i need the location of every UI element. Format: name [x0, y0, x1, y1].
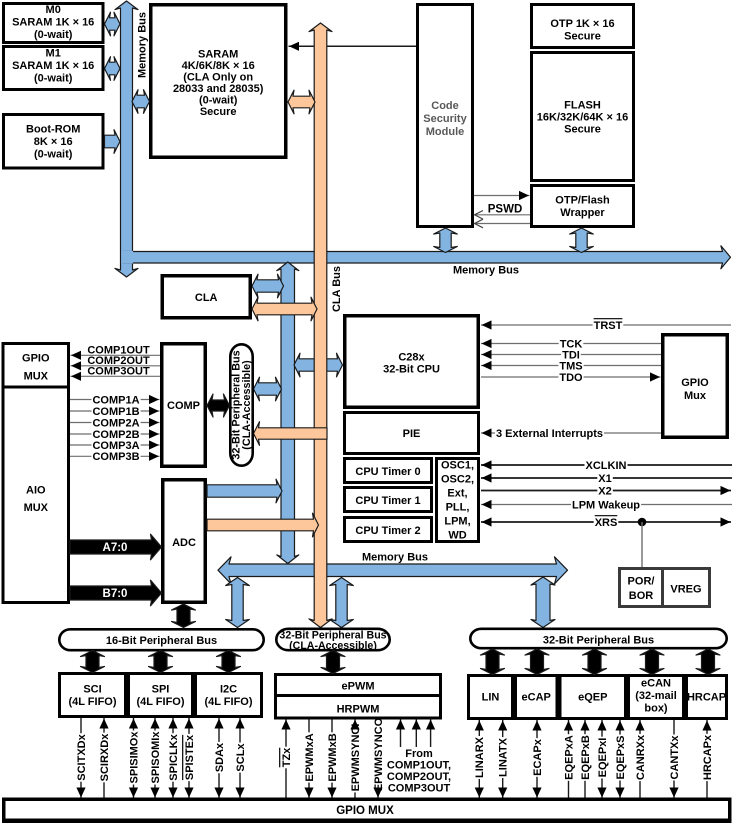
svg-text:SCI: SCI: [83, 684, 101, 696]
svg-text:TDO: TDO: [559, 372, 583, 384]
svg-text:32-Bit Peripheral Bus: 32-Bit Peripheral Bus: [543, 635, 654, 647]
svg-text:AIO: AIO: [26, 485, 46, 497]
svg-text:ECAPx: ECAPx: [532, 738, 544, 776]
svg-text:(4L FIFO): (4L FIFO): [204, 696, 252, 708]
svg-text:SDAx: SDAx: [214, 742, 226, 772]
svg-text:SCIRXDx: SCIRXDx: [99, 733, 111, 782]
svg-text:WD: WD: [448, 530, 466, 542]
svg-text:ePWM: ePWM: [342, 681, 375, 693]
svg-text:XCLKIN: XCLKIN: [586, 460, 627, 472]
svg-text:X2: X2: [598, 485, 611, 497]
svg-text:COMP3B: COMP3B: [92, 451, 139, 463]
svg-text:GPIO MUX: GPIO MUX: [336, 805, 394, 817]
svg-text:Boot-ROM: Boot-ROM: [26, 124, 80, 136]
svg-text:EQEPxB: EQEPxB: [580, 735, 592, 780]
svg-text:COMP: COMP: [167, 400, 200, 412]
svg-text:PIE: PIE: [403, 428, 421, 440]
svg-text:28033 and 28035): 28033 and 28035): [173, 83, 264, 95]
svg-text:SARAM: SARAM: [198, 49, 238, 61]
svg-text:Code: Code: [431, 100, 459, 112]
svg-text:FLASH: FLASH: [564, 100, 601, 112]
svg-text:32-Bit CPU: 32-Bit CPU: [383, 364, 440, 376]
svg-text:EQEPxA: EQEPxA: [563, 735, 575, 780]
svg-text:SPICLKx: SPICLKx: [168, 733, 180, 780]
svg-text:Wrapper: Wrapper: [560, 207, 605, 219]
svg-text:Memory Bus: Memory Bus: [136, 12, 148, 78]
svg-text:SPISIMOx: SPISIMOx: [128, 731, 140, 784]
svg-text:SARAM 1K × 16: SARAM 1K × 16: [12, 17, 94, 29]
svg-text:EPWMxB: EPWMxB: [327, 733, 339, 781]
svg-text:VREG: VREG: [670, 584, 701, 596]
svg-text:LPM Wakeup: LPM Wakeup: [572, 499, 640, 511]
svg-text:CPU Timer 0: CPU Timer 0: [355, 466, 420, 478]
svg-text:Secure: Secure: [564, 124, 601, 136]
svg-text:EQEPxI: EQEPxI: [597, 738, 609, 778]
svg-text:PSWD: PSWD: [488, 204, 523, 216]
svg-text:16-Bit Peripheral Bus: 16-Bit Peripheral Bus: [106, 635, 217, 647]
svg-text:M0: M0: [46, 4, 61, 16]
svg-text:LINATX: LINATX: [498, 737, 510, 777]
svg-text:OTP 1K × 16: OTP 1K × 16: [550, 18, 614, 30]
svg-text:8K × 16: 8K × 16: [34, 136, 73, 148]
svg-text:PLL,: PLL,: [446, 502, 470, 514]
svg-text:SPISOMIx: SPISOMIx: [150, 731, 162, 784]
svg-text:eQEP: eQEP: [578, 692, 607, 704]
svg-text:(0-wait): (0-wait): [199, 95, 238, 107]
svg-text:CLA: CLA: [195, 292, 218, 304]
svg-text:box): box): [644, 703, 668, 715]
svg-text:TMS: TMS: [559, 360, 582, 372]
svg-text:CPU Timer 2: CPU Timer 2: [355, 525, 420, 537]
svg-text:16K/32K/64K × 16: 16K/32K/64K × 16: [537, 112, 628, 124]
svg-text:OSC1,: OSC1,: [441, 460, 474, 472]
svg-text:BOR: BOR: [629, 590, 654, 602]
svg-text:XRS: XRS: [595, 517, 618, 529]
svg-text:A7:0: A7:0: [103, 542, 128, 554]
svg-text:Security: Security: [423, 113, 467, 125]
svg-text:(CLA Only on: (CLA Only on: [183, 72, 253, 84]
svg-text:HRCAPx: HRCAPx: [702, 734, 714, 780]
svg-text:From: From: [405, 748, 433, 760]
svg-text:POR/: POR/: [628, 576, 655, 588]
svg-text:LPM,: LPM,: [444, 516, 470, 528]
svg-text:COMP1OUT,: COMP1OUT,: [387, 760, 451, 772]
svg-text:CANTXx: CANTXx: [669, 735, 681, 780]
svg-text:EQEPxS: EQEPxS: [615, 735, 627, 779]
svg-text:3 External Interrupts: 3 External Interrupts: [496, 428, 603, 440]
svg-text:SCITXDx: SCITXDx: [76, 733, 88, 780]
svg-text:TRST: TRST: [594, 320, 623, 332]
svg-text:COMP3A: COMP3A: [92, 440, 139, 452]
svg-text:(0-wait): (0-wait): [34, 73, 73, 85]
svg-text:C28x: C28x: [398, 352, 425, 364]
svg-text:TZx: TZx: [281, 747, 293, 767]
svg-text:HRCAP: HRCAP: [687, 692, 726, 704]
svg-text:(0-wait): (0-wait): [34, 29, 73, 41]
svg-text:COMP3OUT: COMP3OUT: [87, 365, 150, 377]
svg-text:SPI: SPI: [152, 684, 170, 696]
svg-text:I2C: I2C: [220, 684, 237, 696]
svg-text:Secure: Secure: [200, 106, 237, 118]
svg-text:MUX: MUX: [24, 371, 49, 383]
svg-text:MUX: MUX: [24, 502, 49, 514]
svg-text:(32-mail: (32-mail: [635, 690, 677, 702]
svg-text:Module: Module: [426, 126, 465, 138]
svg-text:(4L FIFO): (4L FIFO): [136, 696, 184, 708]
svg-text:EPWMSYNCO: EPWMSYNCO: [373, 717, 385, 791]
svg-text:HRPWM: HRPWM: [337, 704, 380, 716]
svg-text:CANRXx: CANRXx: [635, 734, 647, 780]
svg-text:ADC: ADC: [172, 537, 196, 549]
svg-text:(0-wait): (0-wait): [34, 149, 73, 161]
svg-text:Secure: Secure: [564, 31, 601, 43]
svg-text:GPIO: GPIO: [22, 353, 50, 365]
svg-text:COMP2A: COMP2A: [92, 417, 139, 429]
svg-text:Memory Bus: Memory Bus: [362, 552, 428, 564]
svg-text:CPU Timer 1: CPU Timer 1: [355, 495, 420, 507]
svg-text:COMP2OUT,: COMP2OUT,: [387, 771, 451, 783]
svg-text:LINARX: LINARX: [474, 736, 486, 778]
svg-text:SARAM 1K × 16: SARAM 1K × 16: [12, 60, 94, 72]
svg-text:EPWMxA: EPWMxA: [304, 733, 316, 781]
svg-text:4K/6K/8K × 16: 4K/6K/8K × 16: [182, 60, 255, 72]
svg-text:LIN: LIN: [482, 692, 500, 704]
svg-text:COMP3OUT: COMP3OUT: [388, 783, 451, 795]
svg-text:COMP1A: COMP1A: [92, 394, 139, 406]
svg-text:EPWMSYNCI: EPWMSYNCI: [350, 724, 362, 792]
svg-text:eCAP: eCAP: [522, 692, 551, 704]
svg-text:CLA Bus: CLA Bus: [331, 266, 343, 312]
svg-text:eCAN: eCAN: [641, 678, 671, 690]
svg-text:M1: M1: [46, 48, 61, 60]
svg-text:OTP/Flash: OTP/Flash: [555, 195, 610, 207]
svg-text:OSC2,: OSC2,: [441, 474, 474, 486]
svg-text:Memory Bus: Memory Bus: [453, 265, 519, 277]
svg-text:(CLA-Accessible): (CLA-Accessible): [241, 360, 253, 450]
svg-text:Ext,: Ext,: [447, 488, 467, 500]
svg-text:Mux: Mux: [684, 390, 707, 402]
svg-text:GPIO: GPIO: [681, 377, 709, 389]
svg-text:COMP1B: COMP1B: [92, 406, 139, 418]
svg-text:X1: X1: [598, 473, 611, 485]
svg-text:B7:0: B7:0: [103, 588, 128, 600]
svg-text:SPISTEx: SPISTEx: [184, 734, 196, 780]
svg-text:SCLx: SCLx: [235, 743, 247, 772]
svg-text:(4L FIFO): (4L FIFO): [68, 696, 116, 708]
